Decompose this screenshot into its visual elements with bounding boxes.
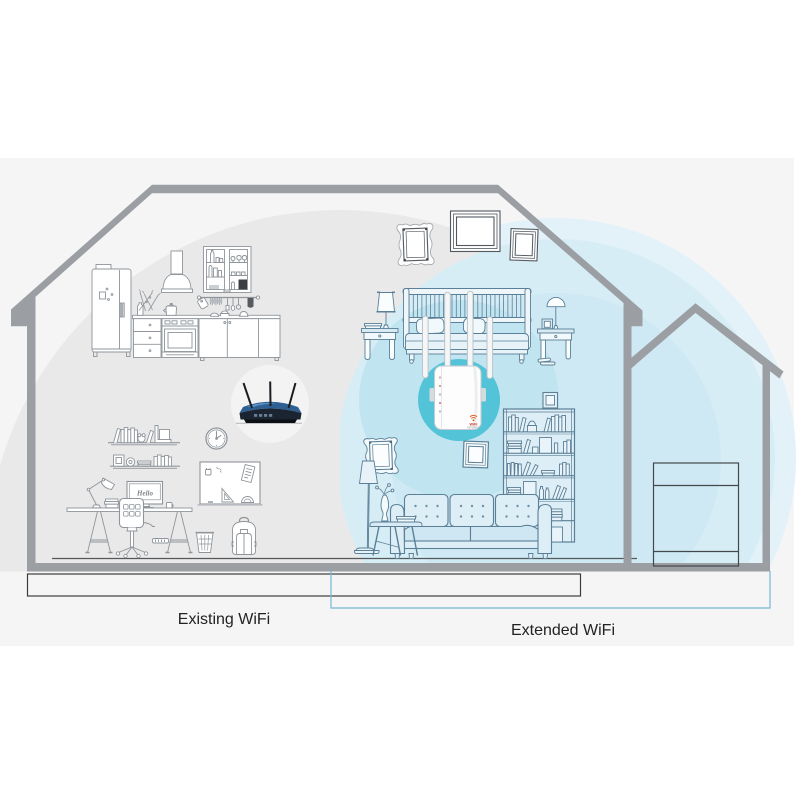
svg-text:REPEATER: REPEATER bbox=[467, 427, 480, 430]
svg-text:Existing WiFi: Existing WiFi bbox=[178, 611, 270, 628]
svg-text:Hello: Hello bbox=[136, 490, 153, 498]
svg-text:Extended WiFi: Extended WiFi bbox=[511, 622, 615, 639]
